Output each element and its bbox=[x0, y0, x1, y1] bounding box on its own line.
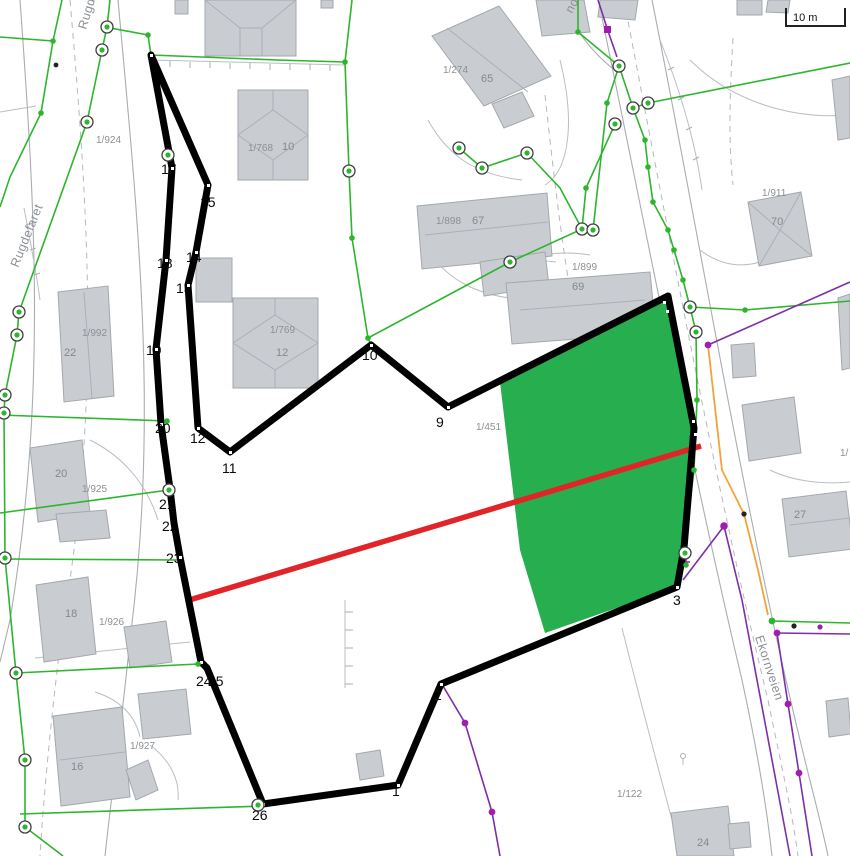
parcel-label: 1/926 bbox=[99, 617, 124, 628]
street-label-ekornveien: Ekornveien bbox=[752, 634, 786, 703]
boundary-vertex-label: 11 bbox=[222, 460, 237, 476]
boundary-vertex-label: 26 bbox=[252, 807, 268, 823]
cadastral-map-canvas[interactable]: 1/924 1/992 1/769 1/768 1/274 1/898 1/89… bbox=[0, 0, 850, 856]
parcel-lines bbox=[0, 38, 850, 820]
parcel-label: 1/898 bbox=[436, 216, 461, 227]
parcel-label: 1/911 bbox=[762, 188, 787, 199]
house-number-label: 27 bbox=[794, 509, 806, 521]
parcel-label: 1/769 bbox=[270, 325, 295, 336]
boundary-vertex-label: 9 bbox=[436, 414, 444, 430]
scale-bar: 10 m bbox=[786, 8, 845, 26]
parcel-label: 1/768 bbox=[248, 143, 273, 154]
parcel-label: 1/899 bbox=[572, 262, 597, 273]
house-number-label: 24 bbox=[697, 837, 709, 849]
purple-node-square bbox=[604, 26, 611, 33]
house-number-label: 69 bbox=[572, 281, 584, 293]
house-number-label: 16 bbox=[71, 761, 83, 773]
house-number-label: 65 bbox=[481, 73, 493, 85]
map-viewport[interactable]: 1/924 1/992 1/769 1/768 1/274 1/898 1/89… bbox=[0, 0, 850, 856]
street-label-rugdefaret-mid: Rugdefaret bbox=[8, 202, 46, 269]
highlighted-area-polygon[interactable] bbox=[500, 296, 694, 633]
house-number-label: 70 bbox=[771, 216, 783, 228]
parcel-label: 1/992 bbox=[82, 328, 107, 339]
parcel-label: 1/122 bbox=[617, 789, 642, 800]
parcel-label: 1/925 bbox=[82, 484, 107, 495]
house-number-label: 18 bbox=[65, 608, 77, 620]
house-number-label: 67 bbox=[472, 215, 484, 227]
boundary-vertex-label: 20 bbox=[155, 420, 171, 436]
boundary-vertex-label: 3 bbox=[673, 592, 681, 608]
parcel-label: 1/927 bbox=[130, 741, 155, 752]
scale-bar-label: 10 m bbox=[793, 12, 817, 24]
house-number-label: 12 bbox=[276, 347, 288, 359]
house-number-label: 10 bbox=[282, 141, 294, 153]
house-number-label: 22 bbox=[64, 347, 76, 359]
parcel-label: 1/ bbox=[840, 448, 849, 459]
parcel-label: 1/924 bbox=[96, 135, 121, 146]
boundary-vertex-label: 12 bbox=[190, 430, 206, 446]
boundary-vertex-label: 1 bbox=[392, 783, 400, 799]
parcel-label: 1/451 bbox=[476, 422, 501, 433]
boundary-vertex-label: 10 bbox=[362, 347, 378, 363]
parcel-label: 1/274 bbox=[443, 65, 468, 76]
boundary-vertex-label: 2 bbox=[434, 687, 442, 703]
house-number-label: 20 bbox=[55, 468, 67, 480]
boundary-vertex-label: 24 bbox=[196, 673, 212, 689]
